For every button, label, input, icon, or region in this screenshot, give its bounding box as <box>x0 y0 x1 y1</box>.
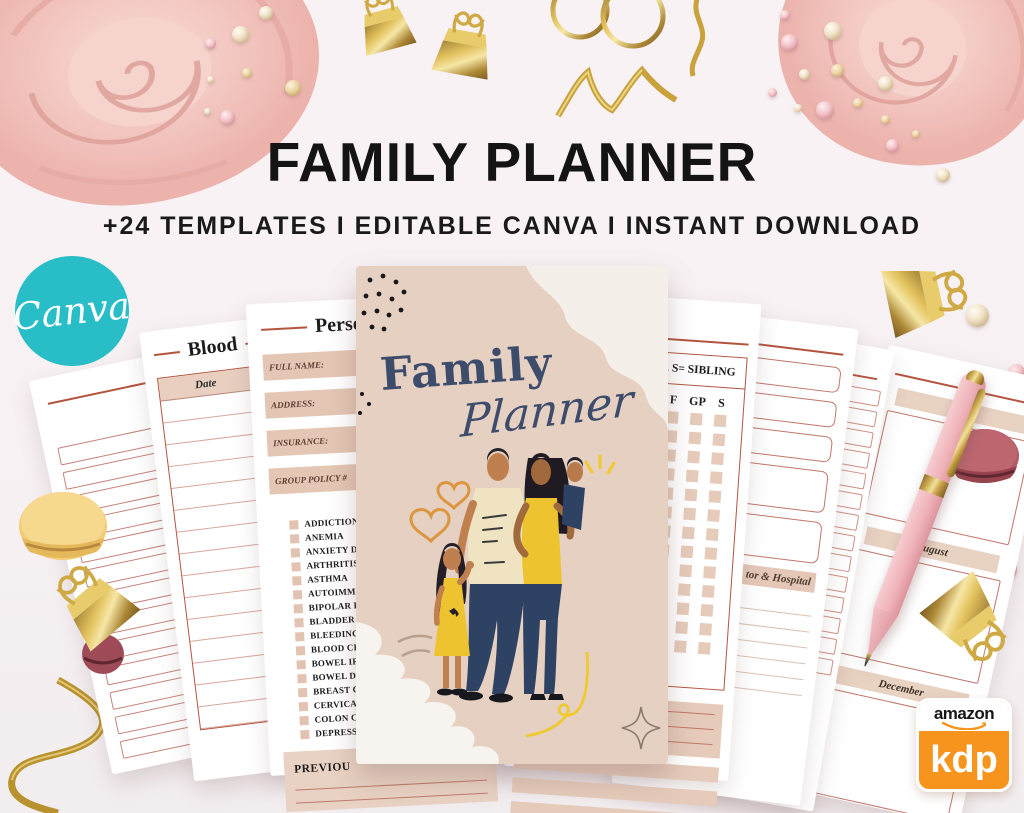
checkbox-icon <box>703 566 716 579</box>
checkbox-icon <box>296 659 305 668</box>
checkbox-icon <box>712 433 725 446</box>
checkbox-icon <box>300 729 309 738</box>
amazon-smile-icon <box>941 722 989 730</box>
checkbox-icon <box>682 526 695 539</box>
checkbox-icon <box>679 564 692 577</box>
checkbox-icon <box>293 590 302 599</box>
canva-label: Canva <box>11 283 132 338</box>
checkbox-icon <box>674 640 687 653</box>
checkbox-icon <box>685 489 698 502</box>
kdp-badge: amazon kdp <box>916 698 1012 792</box>
promo-image: FAMILY PLANNER +24 TEMPLATES I EDITABLE … <box>0 0 1024 813</box>
checkbox-icon <box>701 604 714 617</box>
pearl-icon <box>259 6 273 20</box>
checkbox-icon <box>291 548 300 557</box>
checkbox-icon <box>678 583 691 596</box>
page-title: FAMILY PLANNER <box>0 130 1024 194</box>
field-label: INSURANCE: <box>273 435 328 448</box>
pearl-icon <box>781 34 798 51</box>
checkbox-icon <box>295 632 304 641</box>
pearl-icon <box>205 38 216 49</box>
rings-icon <box>540 0 680 57</box>
checkbox-icon <box>699 623 712 636</box>
canva-badge: Canva <box>15 256 129 366</box>
pearl-icon <box>220 110 235 125</box>
pearl-icon <box>881 115 890 124</box>
checkbox-icon <box>686 470 699 483</box>
binder-clip-icon <box>870 245 982 347</box>
page-blood-title: Blood <box>186 333 238 362</box>
checkbox-icon <box>675 621 688 634</box>
checkbox-icon <box>292 576 301 585</box>
field-label: FULL NAME: <box>269 360 324 373</box>
checkbox-icon <box>297 673 306 682</box>
ribbon-icon <box>550 58 690 133</box>
amazon-label: amazon <box>934 704 994 723</box>
pearl-icon <box>204 108 211 115</box>
checkbox-icon <box>714 414 727 427</box>
checkbox-icon <box>298 687 307 696</box>
checkbox-icon <box>290 534 299 543</box>
checkbox-icon <box>296 645 305 654</box>
pearl-icon <box>232 26 249 43</box>
pearl-icon <box>207 76 214 83</box>
checkbox-icon <box>702 585 715 598</box>
previous-heading: PREVIOU <box>294 761 351 776</box>
checkbox-icon <box>710 471 723 484</box>
checkbox-icon <box>294 604 303 613</box>
column-header-s: S <box>709 395 734 412</box>
pen-nib <box>861 653 873 668</box>
divider <box>154 350 180 355</box>
page-subtitle: +24 TEMPLATES I EDITABLE CANVA I INSTANT… <box>0 212 1024 241</box>
pearl-icon <box>285 80 301 96</box>
checkbox-icon <box>706 528 719 541</box>
checkbox-icon <box>698 642 711 655</box>
checkbox-icon <box>711 452 724 465</box>
binder-clip-icon <box>423 0 506 90</box>
field-label: ADDRESS: <box>271 398 315 410</box>
checkbox-icon <box>294 618 303 627</box>
checkbox-icon <box>690 413 703 426</box>
pearl-icon <box>242 68 252 78</box>
pearl-icon <box>780 10 790 20</box>
ribbon-icon <box>686 0 726 86</box>
planner-cover: Family Planner <box>356 266 668 764</box>
pearl-icon <box>816 101 834 119</box>
kdp-label: kdp <box>919 731 1009 789</box>
binder-clip-icon <box>343 0 424 66</box>
checkbox-icon <box>708 490 721 503</box>
divider <box>296 793 488 804</box>
checkbox-icon <box>299 701 308 710</box>
divider <box>261 326 307 330</box>
divider <box>295 780 487 791</box>
pearl-icon <box>878 76 893 91</box>
checkbox-icon <box>291 562 300 571</box>
pearl-icon <box>853 98 863 108</box>
amazon-logo: amazon <box>919 701 1009 731</box>
checkbox-icon <box>689 432 702 445</box>
checkbox-icon <box>704 547 717 560</box>
checkbox-icon <box>687 451 700 464</box>
column-header-gp: GP <box>685 393 710 410</box>
checkbox-icon <box>289 520 298 529</box>
pearl-icon <box>824 22 842 40</box>
checkbox-icon <box>299 715 308 724</box>
pearl-icon <box>799 69 810 80</box>
checkbox-icon <box>707 509 720 522</box>
checkbox-icon <box>677 602 690 615</box>
pearl-icon <box>768 88 777 97</box>
pearl-icon <box>831 64 844 77</box>
checkbox-icon <box>683 508 696 521</box>
pearl-icon <box>794 104 802 112</box>
field-label: GROUP POLICY # <box>275 473 347 487</box>
checkbox-icon <box>681 545 694 558</box>
